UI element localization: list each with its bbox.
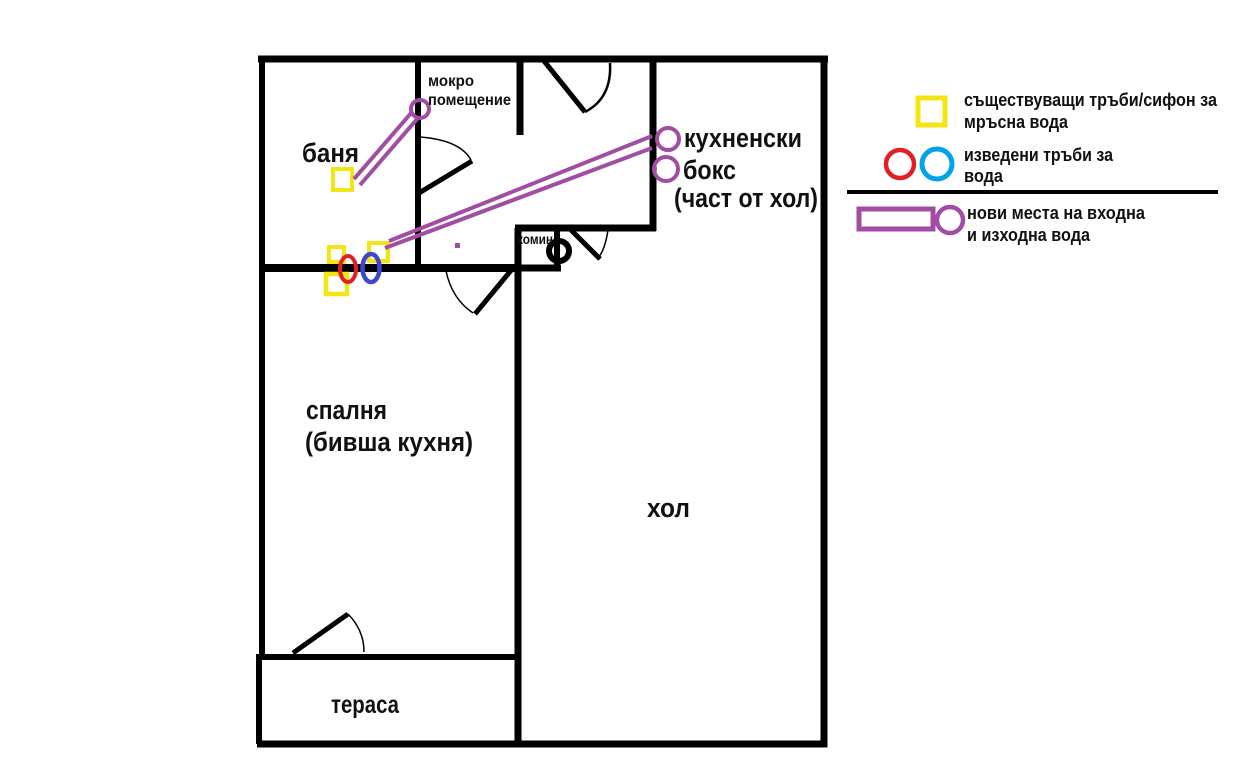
legend-routed-line1: изведени тръби за xyxy=(964,145,1114,165)
legend-existing-line2: мръсна вода xyxy=(964,112,1069,132)
room-label-kitchen-line3: (част от хол) xyxy=(674,183,818,213)
room-label-mokro-line2: помещение xyxy=(428,92,511,109)
purple-dot xyxy=(455,243,460,248)
floor-plan-canvas: баня мокро помещение кухненски бокс (час… xyxy=(0,0,1250,778)
room-label-kitchen-line1: кухненски xyxy=(684,123,802,153)
room-label-bedroom-line1: спалня xyxy=(306,395,387,425)
room-label-komin: комин xyxy=(517,231,553,247)
legend-existing-line1: съществуващи тръби/сифон за xyxy=(964,90,1218,110)
room-label-hall: хол xyxy=(647,493,690,523)
legend-new-line1: нови места на входна xyxy=(967,203,1146,223)
room-label-kitchen-line2: бокс xyxy=(683,155,736,185)
room-label-terrace: тераса xyxy=(331,691,400,719)
legend-routed-line2: вода xyxy=(964,166,1004,186)
room-label-bedroom-line2: (бивша кухня) xyxy=(305,427,473,457)
room-label-mokro-line1: мокро xyxy=(428,73,474,90)
room-label-banya: баня xyxy=(302,138,359,168)
legend-new-line2: и изходна вода xyxy=(967,225,1091,245)
